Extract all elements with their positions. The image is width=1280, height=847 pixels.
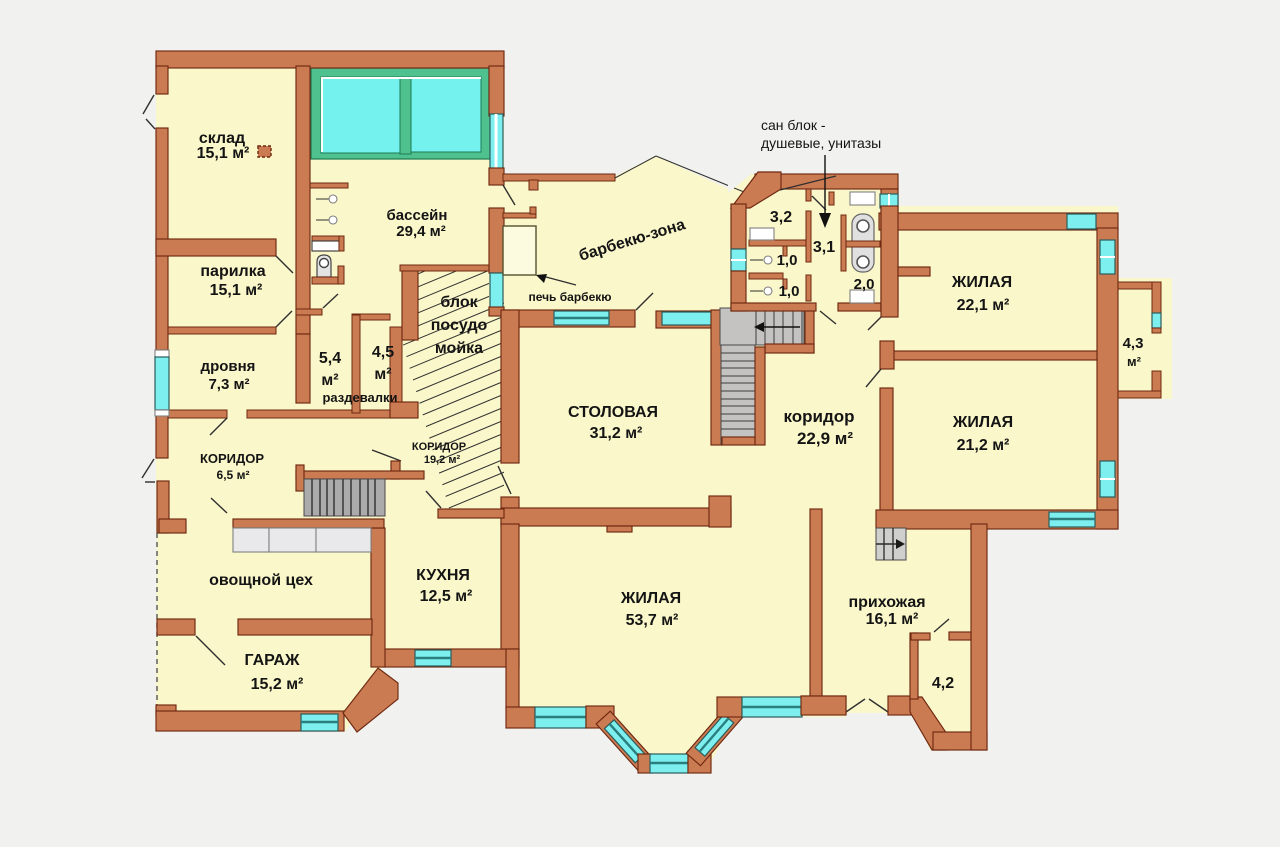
- svg-text:КОРИДОР: КОРИДОР: [200, 451, 264, 466]
- svg-text:ЖИЛАЯ: ЖИЛАЯ: [952, 414, 1013, 431]
- svg-text:2,0: 2,0: [854, 276, 875, 293]
- svg-text:блок: блок: [440, 294, 478, 311]
- svg-text:ЖИЛАЯ: ЖИЛАЯ: [951, 274, 1012, 291]
- svg-text:22,9 м²: 22,9 м²: [797, 429, 853, 448]
- svg-text:31,2 м²: 31,2 м²: [590, 425, 643, 442]
- svg-text:печь барбекю: печь барбекю: [528, 290, 611, 304]
- svg-text:19,2 м²: 19,2 м²: [424, 454, 461, 466]
- svg-text:7,3 м²: 7,3 м²: [208, 376, 249, 393]
- svg-text:КОРИДОР: КОРИДОР: [412, 441, 466, 453]
- svg-text:3,1: 3,1: [813, 239, 835, 256]
- svg-text:21,2 м²: 21,2 м²: [957, 437, 1010, 454]
- svg-text:3,2: 3,2: [770, 209, 792, 226]
- svg-text:53,7 м²: 53,7 м²: [626, 612, 679, 629]
- svg-text:овощной цех: овощной цех: [209, 572, 313, 589]
- svg-text:м²: м²: [321, 372, 338, 389]
- svg-text:прихожая: прихожая: [848, 594, 925, 611]
- svg-text:мойка: мойка: [435, 340, 483, 357]
- svg-text:15,1 м²: 15,1 м²: [197, 145, 250, 162]
- svg-text:коридор: коридор: [783, 407, 854, 426]
- svg-text:22,1 м²: 22,1 м²: [957, 297, 1010, 314]
- svg-text:5,4: 5,4: [319, 350, 341, 367]
- svg-text:м²: м²: [1127, 354, 1142, 369]
- svg-text:1,0: 1,0: [777, 252, 798, 269]
- svg-text:душевые, унитазы: душевые, унитазы: [761, 135, 881, 151]
- svg-text:4,3: 4,3: [1123, 335, 1144, 352]
- svg-text:ЖИЛАЯ: ЖИЛАЯ: [620, 590, 681, 607]
- svg-text:4,2: 4,2: [932, 675, 954, 692]
- svg-text:посудо: посудо: [431, 317, 488, 334]
- svg-text:29,4 м²: 29,4 м²: [396, 223, 445, 240]
- svg-text:сан блок -: сан блок -: [761, 117, 826, 133]
- svg-text:ГАРАЖ: ГАРАЖ: [245, 652, 300, 669]
- svg-text:15,2 м²: 15,2 м²: [251, 676, 304, 693]
- svg-text:12,5 м²: 12,5 м²: [420, 588, 473, 605]
- svg-text:1,0: 1,0: [779, 283, 800, 300]
- svg-text:м²: м²: [374, 366, 391, 383]
- svg-text:15,1 м²: 15,1 м²: [210, 282, 263, 299]
- svg-text:СТОЛОВАЯ: СТОЛОВАЯ: [568, 404, 658, 421]
- svg-text:парилка: парилка: [200, 263, 265, 280]
- svg-text:дровня: дровня: [201, 358, 256, 375]
- svg-text:КУХНЯ: КУХНЯ: [416, 567, 470, 584]
- svg-text:раздевалки: раздевалки: [322, 390, 397, 405]
- svg-text:бассейн: бассейн: [387, 207, 448, 224]
- svg-text:4,5: 4,5: [372, 344, 394, 361]
- svg-text:16,1 м²: 16,1 м²: [866, 611, 919, 628]
- svg-text:6,5 м²: 6,5 м²: [217, 468, 250, 482]
